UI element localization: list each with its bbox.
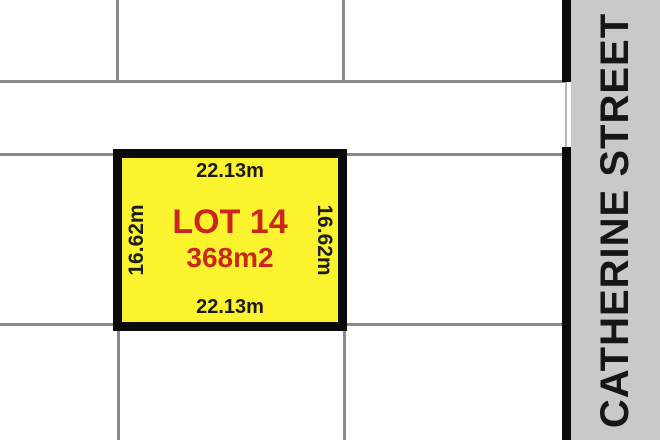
street-frontage-line-faint [565, 82, 567, 147]
dimension-right-label: 16.62m [312, 204, 336, 275]
dimension-left-label: 16.62m [125, 204, 149, 275]
lot-14-inner: 22.13m 16.62m 16.62m LOT 14 368m2 22.13m [122, 158, 338, 322]
lot-boundary-line [117, 326, 120, 440]
lot-boundary-line [116, 0, 119, 82]
lot-area-label: 368m2 [186, 244, 273, 272]
lot-14-parcel: 22.13m 16.62m 16.62m LOT 14 368m2 22.13m [113, 149, 347, 331]
street-band: CATHERINE STREET [571, 0, 660, 440]
street-frontage-line [562, 0, 571, 82]
lot-boundary-line [342, 0, 345, 82]
street-frontage-line [562, 147, 571, 440]
lot-name-label: LOT 14 [172, 205, 287, 239]
lot-boundary-line [343, 326, 346, 440]
subdivision-plan: CATHERINE STREET 22.13m 16.62m 16.62m LO… [0, 0, 660, 440]
street-name-label: CATHERINE STREET [593, 12, 638, 427]
dimension-bottom-label: 22.13m [196, 296, 264, 319]
road-top-edge-line [0, 80, 566, 83]
dimension-top-label: 22.13m [196, 160, 264, 183]
